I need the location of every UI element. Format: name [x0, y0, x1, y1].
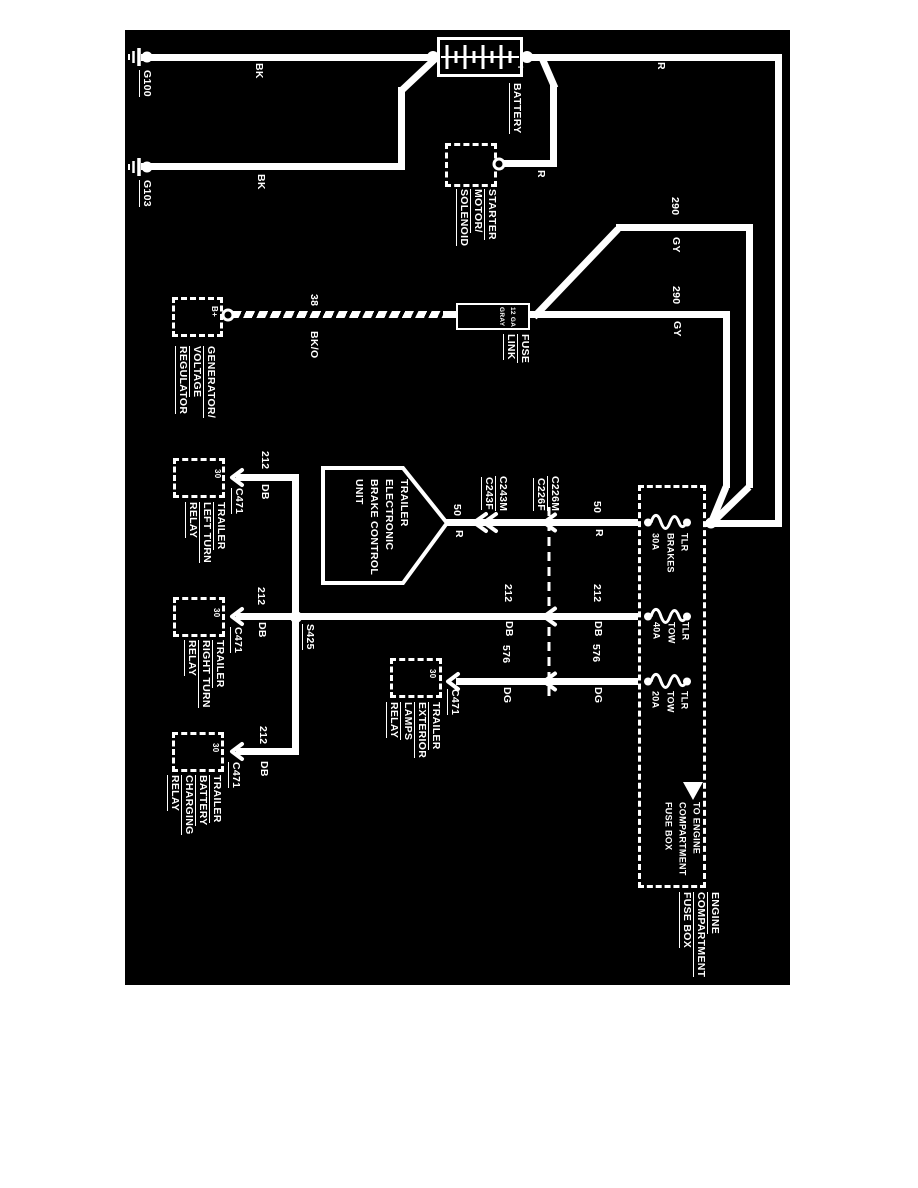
fuse2-name-line1: TLR	[679, 622, 692, 640]
wire-label-bko: BK/O	[307, 331, 320, 358]
wire-label-db-leftturn: DB	[258, 484, 271, 500]
starter-label-line2: MOTOR/	[470, 189, 484, 233]
wire-label-dg-right: DG	[591, 687, 604, 703]
fuse1-name-line2: BRAKES	[664, 533, 677, 573]
fusebox-title-line1: ENGINE	[707, 892, 721, 934]
splice-label-s425: S425	[302, 624, 316, 650]
wire-label-r-left: R	[452, 530, 465, 538]
charging-relay-line2: BATTERY	[195, 775, 209, 826]
left-turn-relay-terminal: 30	[212, 469, 222, 479]
fuse2-rating: 40A	[650, 622, 663, 639]
generator-label-line2: VOLTAGE	[189, 346, 203, 397]
right-turn-relay-c471: C471	[230, 627, 244, 653]
wire-label-212-right: 212	[590, 584, 603, 602]
c243-connector-symbol	[474, 514, 496, 531]
left-turn-relay-line3: RELAY	[185, 502, 199, 538]
fuse-tlr-tow-20a	[644, 674, 691, 687]
left-turn-relay-c471: C471	[231, 488, 245, 514]
wire-label-212-rightturn: 212	[254, 587, 267, 605]
fuse-tlr-brakes-30a	[644, 515, 691, 528]
ground-symbol-g100	[129, 48, 153, 66]
ground-symbol-g103	[129, 158, 153, 176]
diagonal-wires	[401, 58, 749, 522]
starter-terminal	[494, 159, 504, 169]
ground-label-g100: G100	[139, 70, 153, 97]
wire-label-r-right: R	[592, 529, 605, 537]
wire-label-212-leftturn: 212	[258, 451, 271, 469]
battery-plus-sign: +	[513, 64, 526, 70]
wire-label-576-right: 576	[589, 644, 602, 662]
fusebox-arrow-note-line3: FUSE BOX	[662, 802, 675, 850]
fuse-link-gauge-line1: 12 GA	[508, 307, 517, 327]
wire-label-gy-a: GY	[669, 237, 682, 253]
wire-label-db-right: DB	[591, 621, 604, 637]
fuse-link-gauge-line2: GRAY	[497, 307, 506, 326]
starter-label-line1: STARTER	[484, 189, 498, 240]
wire-label-r-top: R	[654, 62, 667, 70]
right-turn-relay-line2: RIGHT TURN	[198, 640, 212, 708]
wire-label-db-rightturn: DB	[255, 622, 268, 638]
junction-dot	[706, 518, 717, 529]
exterior-lamps-relay-c471: C471	[447, 689, 461, 715]
charging-relay-line4: RELAY	[167, 775, 181, 811]
wire-label-dg-mid: DG	[500, 687, 513, 703]
wire-label-576-mid: 576	[499, 645, 512, 663]
fusebox-arrow-note-line2: COMPARTMENT	[676, 802, 689, 876]
generator-terminal-label: B+	[209, 306, 219, 317]
bcu-label-line2: ELECTRONIC	[382, 479, 395, 550]
wire-label-bk-1: BK	[252, 63, 265, 79]
bcu-label-line4: UNIT	[352, 479, 365, 505]
charging-relay-terminal: 30	[210, 743, 220, 753]
starter-label-line3: SOLENOID	[456, 189, 470, 246]
connector-label-c243f: C243F	[481, 477, 495, 510]
wire-label-gy-b: GY	[670, 321, 683, 337]
wire-label-212-charge: 212	[256, 726, 269, 744]
fuse2-name-line2: TOW	[665, 622, 678, 644]
wire-label-290-b: 290	[669, 286, 682, 304]
fuse3-name-line2: TOW	[664, 691, 677, 713]
wire-label-r-starter: R	[534, 170, 547, 178]
fuse-tlr-tow-40a	[644, 609, 691, 622]
fusebox-title-line2: COMPARTMENT	[693, 892, 707, 977]
fuse-link-label-line1: FUSE	[517, 334, 531, 363]
exterior-lamps-relay-line2: EXTERIOR	[414, 702, 428, 758]
down-arrow-icon	[683, 782, 703, 800]
fuse3-name-line1: TLR	[678, 691, 691, 709]
fuse1-name-line1: TLR	[678, 533, 691, 551]
generator-b-plus-terminal	[223, 310, 233, 320]
right-turn-relay-line3: RELAY	[184, 640, 198, 676]
exterior-lamps-relay-terminal: 30	[427, 669, 437, 679]
right-turn-relay-terminal: 30	[211, 608, 221, 618]
wire-label-db-mid: DB	[502, 621, 515, 637]
charging-relay-line3: CHARGING	[181, 775, 195, 835]
charging-relay-c471: C471	[228, 762, 242, 788]
wire-label-50-right: 50	[590, 501, 603, 513]
scanned-wiring-diagram-page: G100 G103 BK BK BATTERY + R R STARTER MO…	[0, 0, 918, 1188]
left-turn-relay-line2: LEFT TURN	[199, 502, 213, 563]
splice-s425-dot	[290, 611, 302, 623]
wire-label-38: 38	[307, 294, 320, 306]
wire-label-bk-2: BK	[254, 174, 267, 190]
fusebox-title-line3: FUSE BOX	[679, 892, 693, 948]
generator-label-line3: REGULATOR	[175, 346, 189, 414]
wire-label-290-a: 290	[668, 197, 681, 215]
wire-label-50-left: 50	[450, 504, 463, 516]
exterior-lamps-relay-line1: TRAILER	[428, 702, 442, 750]
wire-label-db-charge: DB	[257, 761, 270, 777]
trailer-tow-wiring-diagram: G100 G103 BK BK BATTERY + R R STARTER MO…	[125, 30, 790, 985]
generator-label-line1: GENERATOR/	[203, 346, 217, 418]
fuse-link-label-line2: LINK	[503, 334, 517, 360]
connector-label-c226f: C226F	[533, 478, 547, 511]
ground-label-g103: G103	[139, 180, 153, 207]
fuse3-rating: 20A	[649, 691, 662, 708]
fusebox-arrow-note-line1: TO ENGINE	[690, 802, 703, 854]
connector-label-c243m: C243M	[495, 476, 509, 511]
bcu-label-line3: BRAKE CONTROL	[367, 479, 380, 575]
right-turn-relay-line1: TRAILER	[212, 640, 226, 688]
exterior-lamps-relay-line4: RELAY	[386, 702, 400, 738]
charging-relay-line1: TRAILER	[209, 775, 223, 823]
exterior-lamps-relay-line3: LAMPS	[400, 702, 414, 740]
fuse1-rating: 30A	[649, 533, 662, 550]
left-turn-relay-line1: TRAILER	[213, 502, 227, 550]
wire-label-212-mid: 212	[501, 584, 514, 602]
connector-label-c226m: C226M	[547, 476, 561, 511]
bcu-label-line1: TRAILER	[397, 479, 410, 527]
battery-label: BATTERY	[509, 83, 523, 134]
